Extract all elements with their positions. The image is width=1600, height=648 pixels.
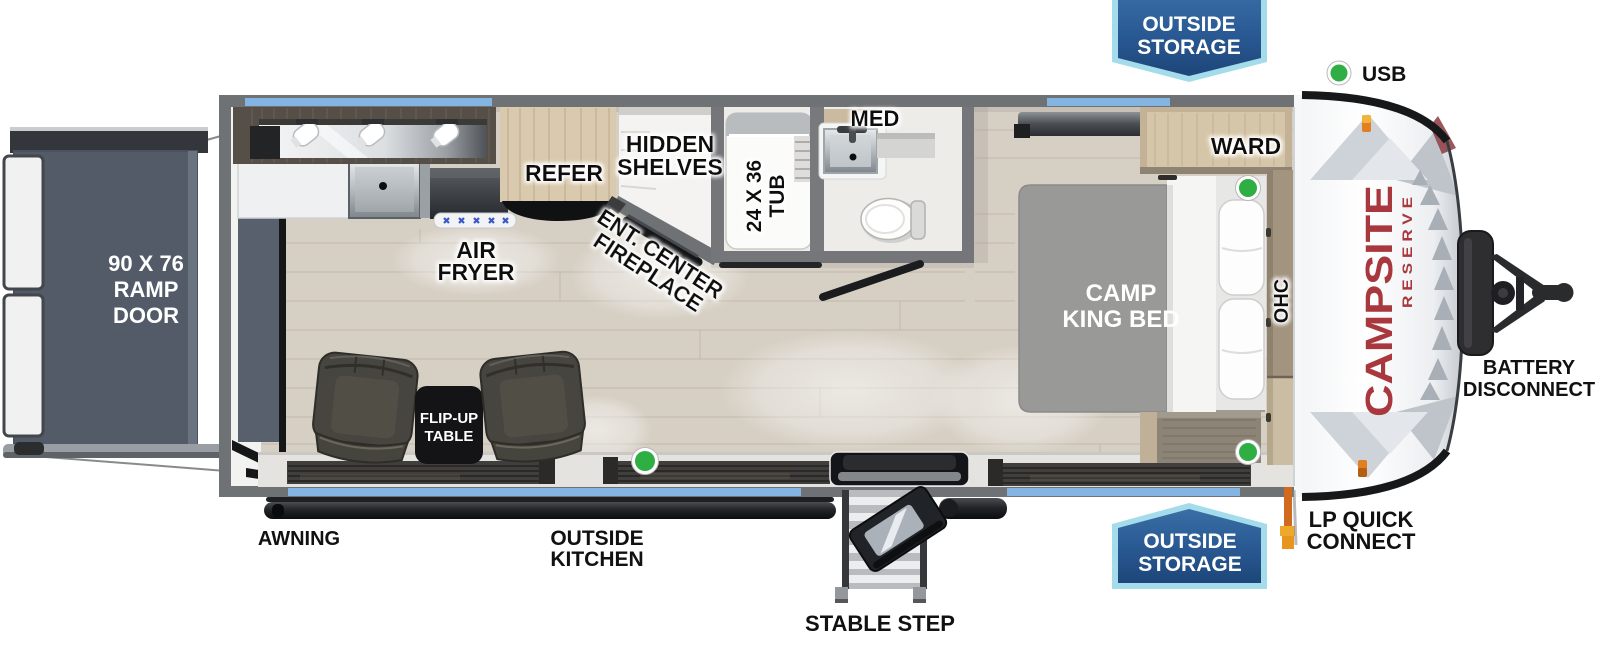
svg-text:90 X 76: 90 X 76 [108, 251, 184, 276]
svg-text:CAMP: CAMP [1086, 280, 1157, 307]
svg-text:TABLE: TABLE [425, 428, 474, 445]
svg-text:RAMP: RAMP [114, 277, 179, 302]
svg-text:FLIP-UP: FLIP-UP [420, 410, 478, 427]
svg-text:AWNING: AWNING [258, 528, 340, 550]
svg-text:FRYER: FRYER [437, 259, 514, 285]
svg-text:CONNECT: CONNECT [1307, 529, 1416, 554]
svg-text:STORAGE: STORAGE [1138, 553, 1241, 576]
svg-text:SHELVES: SHELVES [617, 154, 723, 180]
svg-text:MED: MED [851, 106, 900, 131]
svg-text:CAMPSITE: CAMPSITE [1359, 185, 1401, 417]
svg-text:KING BED: KING BED [1062, 306, 1179, 333]
svg-text:TUB: TUB [766, 174, 789, 217]
svg-text:KITCHEN: KITCHEN [550, 548, 643, 571]
svg-text:STABLE STEP: STABLE STEP [805, 611, 955, 636]
svg-text:OUTSIDE: OUTSIDE [550, 527, 643, 550]
svg-text:RESERVE: RESERVE [1399, 192, 1415, 308]
svg-text:USB: USB [1362, 63, 1406, 86]
svg-text:BATTERY: BATTERY [1483, 357, 1576, 379]
svg-text:DOOR: DOOR [113, 303, 179, 328]
svg-text:STORAGE: STORAGE [1137, 36, 1240, 59]
svg-text:24 X 36: 24 X 36 [743, 160, 766, 232]
svg-text:OHC: OHC [1271, 279, 1293, 323]
svg-text:DISCONNECT: DISCONNECT [1463, 379, 1595, 401]
svg-text:OUTSIDE: OUTSIDE [1142, 13, 1235, 36]
svg-text:OUTSIDE: OUTSIDE [1143, 530, 1236, 553]
svg-text:REFER: REFER [525, 160, 603, 186]
svg-text:WARD: WARD [1211, 133, 1281, 159]
